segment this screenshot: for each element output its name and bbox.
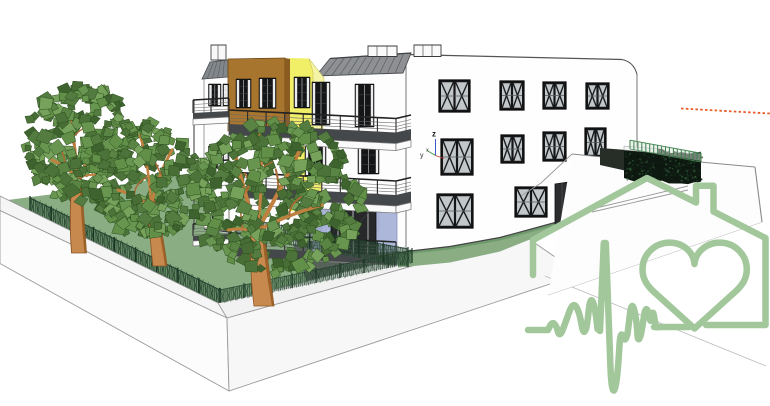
svg-text:x: x [426, 148, 429, 154]
svg-text:z: z [432, 130, 436, 139]
svg-text:y: y [420, 153, 424, 160]
